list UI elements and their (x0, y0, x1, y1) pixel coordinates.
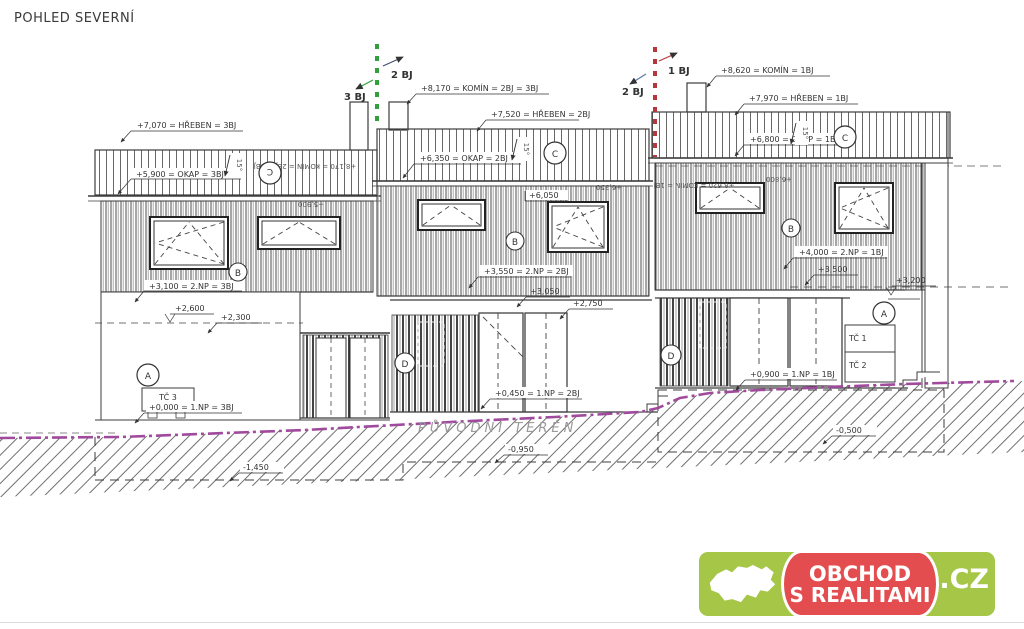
level-text: +0,900 = 1.NP = 1BJ (750, 370, 835, 379)
reference-marker-b: B (229, 263, 247, 281)
terrain-label: PŮVODNÍ TERÉN (418, 420, 577, 436)
level-text: -1,450 (243, 463, 269, 472)
reference-marker-c: C (259, 162, 281, 184)
reference-marker-a: A (873, 302, 895, 324)
unit-label-3bj: 3 BJ (344, 92, 366, 103)
level-text: -0,950 (508, 445, 534, 454)
reference-marker-d: D (395, 353, 415, 373)
slat-screen (660, 298, 728, 386)
level-text: +8,170 = KOMÍN = 2BJ = 3BJ (421, 82, 538, 93)
watermark-logo: OBCHOD S REALITAMI .CZ (699, 552, 995, 616)
level-text: +8,620 = KOMÍN = 1BJ (721, 64, 813, 75)
level-text: +5,900 = OKAP = 3BJ (136, 170, 224, 179)
slope-text: 15° (801, 127, 809, 139)
level-text: +3,100 = 2.NP = 3BJ (149, 282, 234, 291)
slope-text: 15° (522, 143, 530, 155)
side-return (925, 163, 948, 388)
marker-letter: D (402, 360, 409, 370)
marker-letter: B (235, 269, 241, 279)
level-text: +2,600 (175, 304, 205, 313)
level-text: +3,500 (818, 265, 848, 274)
chimney (350, 102, 368, 150)
screenshot: POHLED SEVERNÍ (0, 0, 1024, 629)
window (258, 217, 340, 249)
logo-text-line2: S REALITAMI (789, 585, 930, 606)
heat-pump-label: TČ 3 (158, 391, 177, 402)
unit-label-2bj: 2 BJ (622, 87, 644, 98)
reference-marker-b: B (506, 232, 524, 250)
level-text: +3,050 (530, 287, 560, 296)
marker-letter: D (668, 352, 675, 362)
logo-tld: .CZ (939, 564, 989, 595)
architectural-drawing: POHLED SEVERNÍ (0, 0, 1024, 629)
heat-pump-label: TČ 1 (848, 332, 867, 343)
marker-letter: C (267, 166, 273, 176)
window (835, 183, 893, 233)
level-text: +2,300 (221, 313, 251, 322)
level-annotation: +6,050 (525, 190, 568, 201)
reference-marker-d: D (661, 345, 681, 365)
level-annotation: +7,520 = HŘEBEN = 2BJ (477, 109, 590, 131)
marker-letter: C (842, 134, 848, 144)
level-text-mirrored: +8,620 = KOMÍN = 1BJ (654, 181, 735, 190)
marker-letter: C (552, 150, 558, 160)
logo-text-line1: OBCHOD (809, 563, 911, 585)
unit-label-1bj: 1 BJ (668, 66, 690, 77)
reference-marker-b: B (782, 219, 800, 237)
level-annotation: +7,070 = HŘEBEN = 3BJ (121, 120, 243, 142)
level-text: +0,450 = 1.NP = 2BJ (495, 389, 580, 398)
level-text: +6,350 = OKAP = 2BJ (420, 154, 508, 163)
level-text: -0,500 (836, 426, 862, 435)
heat-pump-label: TČ 2 (848, 359, 867, 370)
level-text: +3,550 = 2.NP = 2BJ (484, 267, 569, 276)
level-annotation: +2,750 (560, 299, 613, 319)
level-text: +6,800 = OKAP = 1BJ (750, 135, 838, 144)
level-text: +7,520 = HŘEBEN = 2BJ (491, 109, 590, 119)
unit-label-2bj: 2 BJ (391, 70, 413, 81)
slope-text: 15° (235, 159, 243, 171)
level-text-mirrored: +6,350 (596, 183, 622, 191)
heat-pump-box: TČ 1 TČ 2 (845, 325, 895, 382)
level-text-mirrored: +6,800 (766, 175, 792, 183)
level-annotation: +8,620 = KOMÍN = 1BJ (707, 64, 830, 87)
chimney (687, 83, 706, 112)
chimney (389, 102, 408, 130)
level-annotation: +8,170 = KOMÍN = 2BJ = 3BJ (407, 82, 549, 104)
czech-map-icon (703, 559, 779, 611)
level-text: +3,200 (896, 276, 926, 285)
marker-letter: B (788, 225, 794, 235)
level-text: +6,050 (529, 191, 559, 200)
level-text: +2,750 (573, 299, 603, 308)
marker-letter: A (881, 310, 888, 320)
level-text: +7,070 = HŘEBEN = 3BJ (137, 120, 236, 130)
level-text: +7,970 = HŘEBEN = 1BJ (749, 93, 848, 103)
level-text: +4,000 = 2.NP = 1BJ (799, 248, 884, 257)
reference-marker-c: C (544, 142, 566, 164)
marker-letter: A (145, 372, 152, 382)
window (548, 202, 608, 252)
bottom-divider (0, 622, 1024, 623)
reference-marker-a: A (137, 364, 159, 386)
page-title: POHLED SEVERNÍ (14, 10, 135, 26)
window (150, 217, 228, 269)
window (418, 200, 485, 230)
level-text-mirrored: +5,900 (298, 200, 324, 208)
reference-marker-c: C (834, 126, 856, 148)
logo-red-panel: OBCHOD S REALITAMI (781, 550, 939, 618)
marker-letter: B (512, 238, 518, 248)
house-1bj: TČ 1 TČ 2 (648, 83, 1005, 388)
level-text: +0,000 = 1.NP = 3BJ (149, 403, 234, 412)
